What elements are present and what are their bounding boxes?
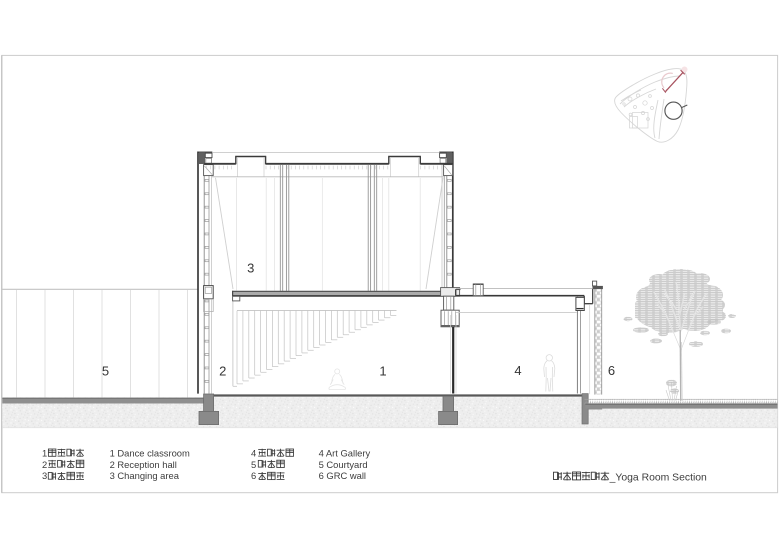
svg-text:1: 1 (42, 448, 47, 459)
svg-text:_Yoga Room Section: _Yoga Room Section (609, 473, 707, 484)
svg-text:5: 5 (102, 363, 109, 378)
svg-text:6: 6 (251, 470, 256, 481)
svg-text:4 Art Gallery: 4 Art Gallery (319, 448, 371, 459)
svg-text:4: 4 (251, 448, 256, 459)
svg-text:6 GRC wall: 6 GRC wall (319, 470, 366, 481)
svg-text:1: 1 (379, 363, 386, 378)
svg-text:2: 2 (42, 459, 47, 470)
svg-text:4: 4 (514, 363, 521, 378)
svg-text:3: 3 (42, 470, 47, 481)
svg-text:6: 6 (608, 363, 615, 378)
svg-text:2: 2 (219, 363, 226, 378)
svg-text:3: 3 (247, 260, 254, 275)
svg-text:1 Dance classroom: 1 Dance classroom (110, 448, 190, 459)
svg-text:5: 5 (251, 459, 256, 470)
svg-text:5 Courtyard: 5 Courtyard (319, 459, 368, 470)
svg-text:3 Changing area: 3 Changing area (110, 470, 180, 481)
svg-text:2 Reception hall: 2 Reception hall (110, 459, 177, 470)
